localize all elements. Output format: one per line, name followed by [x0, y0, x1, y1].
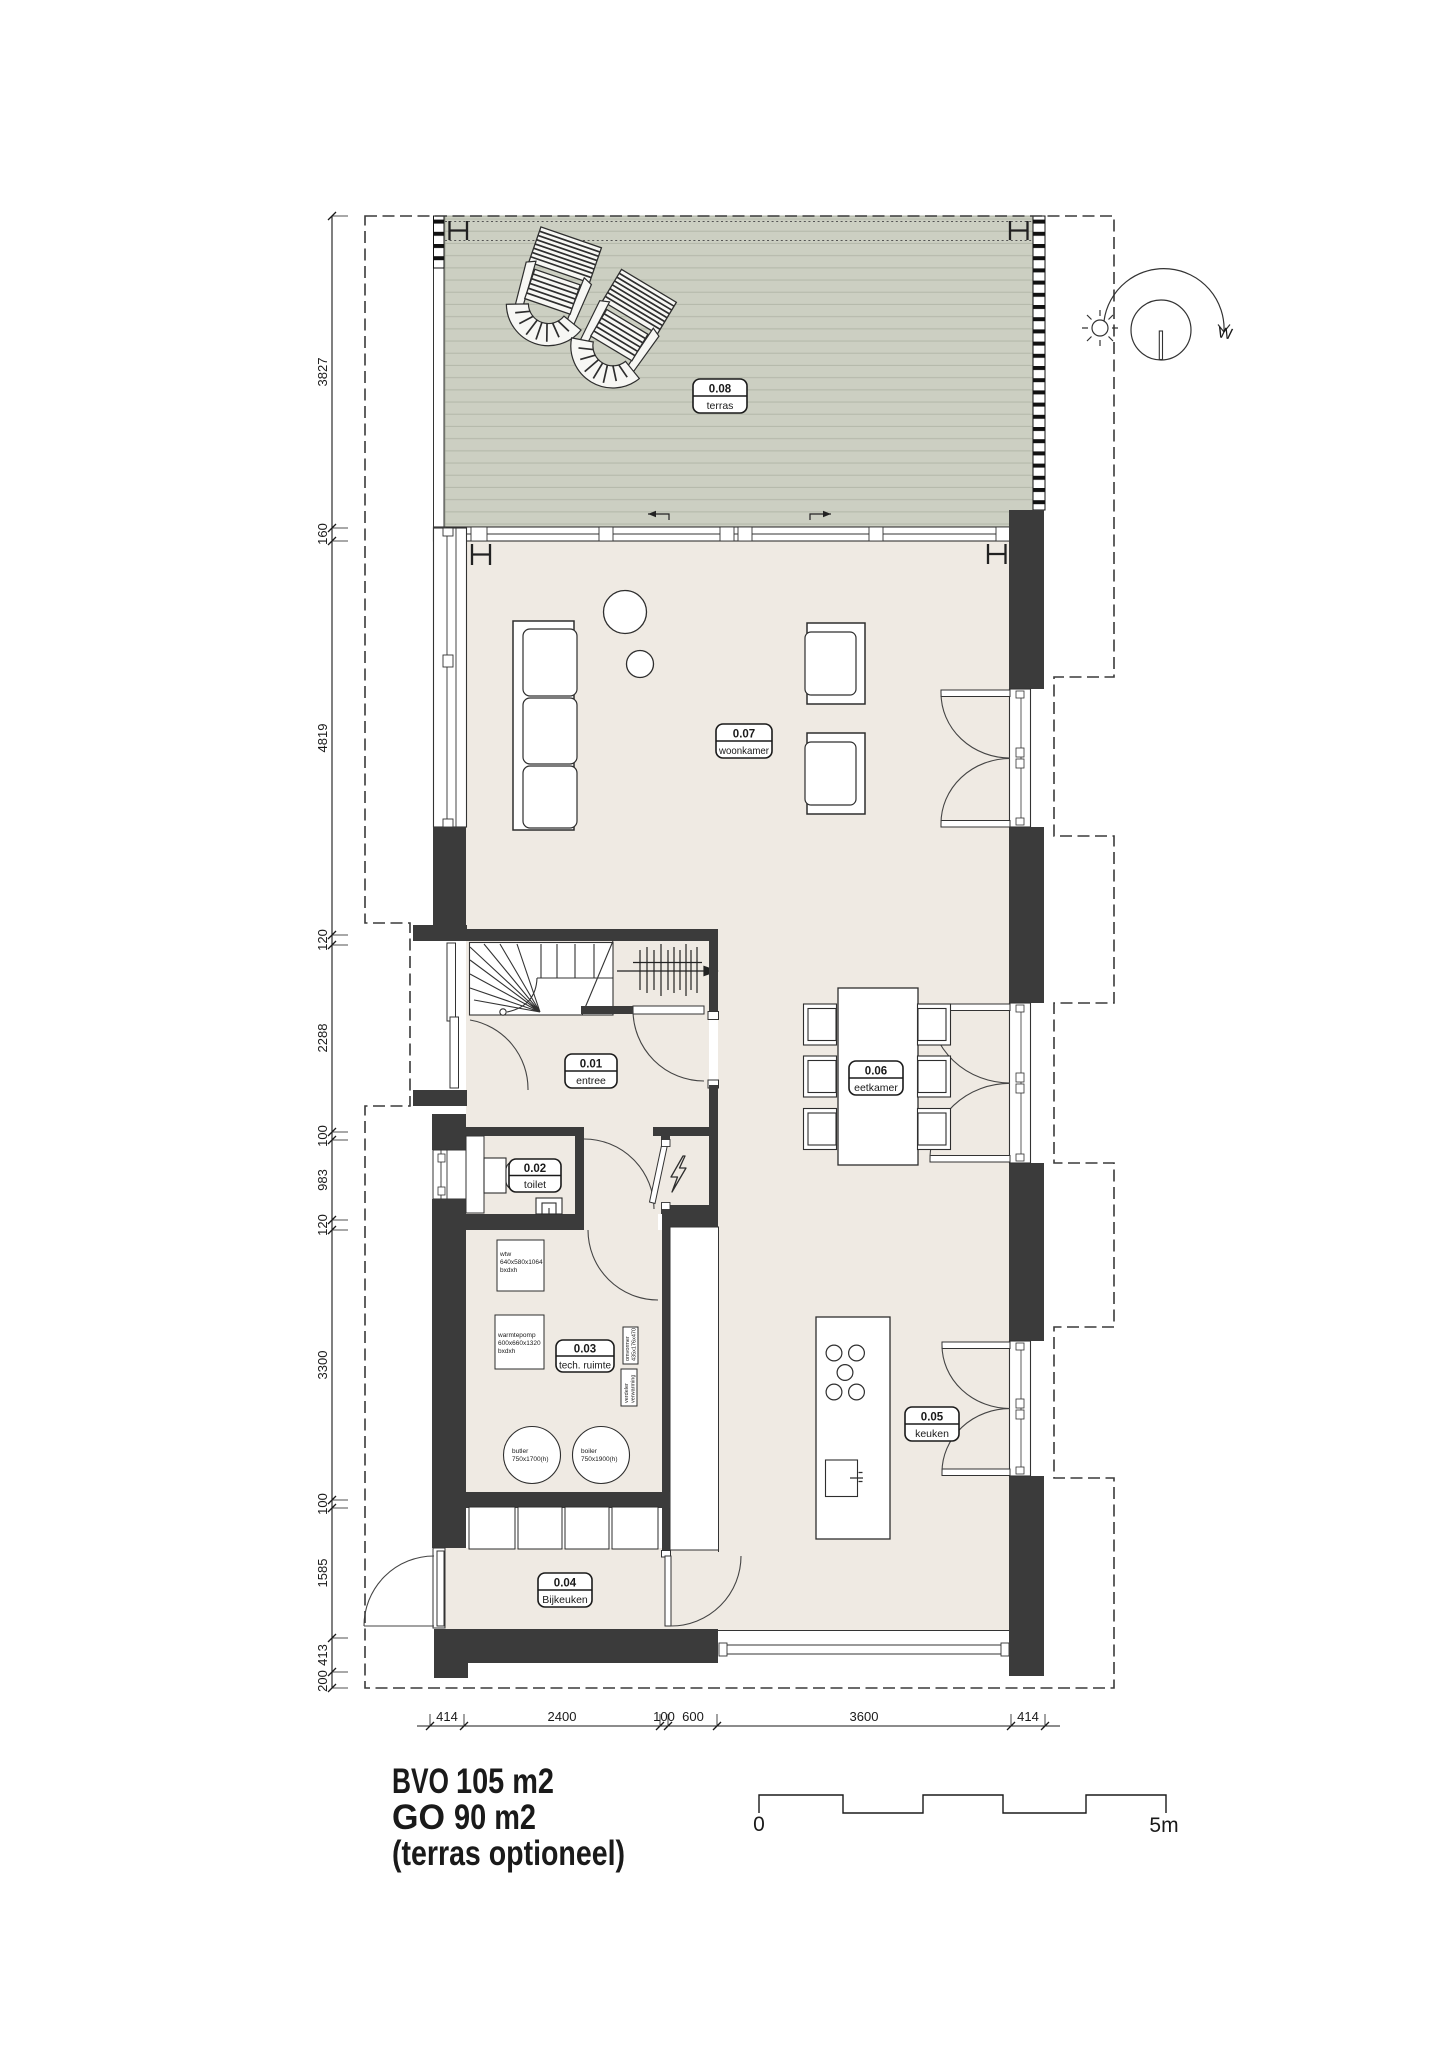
svg-text:100: 100 [315, 1493, 330, 1515]
svg-text:640x580x1064: 640x580x1064 [500, 1259, 543, 1266]
svg-text:terras: terras [707, 400, 734, 412]
svg-text:wtw: wtw [499, 1251, 512, 1258]
svg-text:bxdxh: bxdxh [498, 1348, 516, 1355]
svg-text:0.02: 0.02 [524, 1163, 546, 1175]
svg-text:435x176x470: 435x176x470 [632, 1328, 638, 1361]
svg-text:verdeler: verdeler [624, 1383, 630, 1403]
svg-text:100: 100 [315, 1125, 330, 1147]
svg-text:160: 160 [315, 523, 330, 545]
svg-text:120: 120 [315, 1214, 330, 1236]
svg-text:5m: 5m [1149, 1814, 1178, 1837]
svg-text:750x1900(h): 750x1900(h) [581, 1456, 618, 1463]
svg-text:983: 983 [315, 1169, 330, 1191]
svg-text:omvormer: omvormer [625, 1336, 631, 1361]
svg-text:0.08: 0.08 [709, 384, 732, 396]
svg-text:1585: 1585 [315, 1559, 330, 1588]
svg-text:warmtepomp: warmtepomp [497, 1332, 536, 1339]
svg-text:0.06: 0.06 [865, 1066, 887, 1078]
svg-text:toilet: toilet [524, 1179, 546, 1191]
svg-text:tech. ruimte: tech. ruimte [559, 1360, 611, 1372]
svg-text:2288: 2288 [315, 1024, 330, 1053]
svg-text:3600: 3600 [850, 1709, 879, 1724]
svg-text:bxdxh: bxdxh [500, 1267, 518, 1274]
svg-text:413: 413 [315, 1644, 330, 1666]
svg-text:eetkamer: eetkamer [854, 1082, 898, 1094]
svg-text:120: 120 [315, 929, 330, 951]
svg-text:90 m2: 90 m2 [454, 1798, 536, 1837]
svg-text:100: 100 [653, 1709, 675, 1724]
svg-text:0.01: 0.01 [580, 1059, 603, 1071]
svg-text:verwarming: verwarming [631, 1375, 637, 1403]
svg-text:414: 414 [1017, 1709, 1039, 1724]
svg-text:2400: 2400 [548, 1709, 577, 1724]
svg-text:414: 414 [436, 1709, 458, 1724]
svg-text:BVO: BVO [392, 1762, 449, 1801]
svg-text:0.05: 0.05 [921, 1412, 944, 1424]
svg-text:0.07: 0.07 [733, 729, 755, 741]
svg-text:(terras optioneel): (terras optioneel) [392, 1834, 625, 1873]
svg-text:600: 600 [682, 1709, 704, 1724]
svg-text:105 m2: 105 m2 [456, 1762, 554, 1801]
svg-text:boiler: boiler [581, 1448, 598, 1455]
svg-text:3300: 3300 [315, 1351, 330, 1380]
svg-text:0: 0 [753, 1813, 765, 1836]
svg-text:0.04: 0.04 [554, 1578, 577, 1590]
svg-text:750x1700(h): 750x1700(h) [512, 1456, 549, 1463]
svg-text:600x660x1320: 600x660x1320 [498, 1340, 541, 1347]
svg-text:entree: entree [576, 1075, 606, 1087]
svg-text:keuken: keuken [915, 1428, 949, 1440]
svg-text:Bijkeuken: Bijkeuken [542, 1594, 588, 1606]
svg-text:woonkamer: woonkamer [718, 745, 769, 757]
svg-text:GO: GO [392, 1798, 445, 1837]
svg-text:200: 200 [315, 1670, 330, 1692]
svg-text:4819: 4819 [315, 724, 330, 753]
svg-text:butler: butler [512, 1448, 529, 1455]
svg-text:3827: 3827 [315, 358, 330, 387]
svg-text:0.03: 0.03 [574, 1344, 596, 1356]
